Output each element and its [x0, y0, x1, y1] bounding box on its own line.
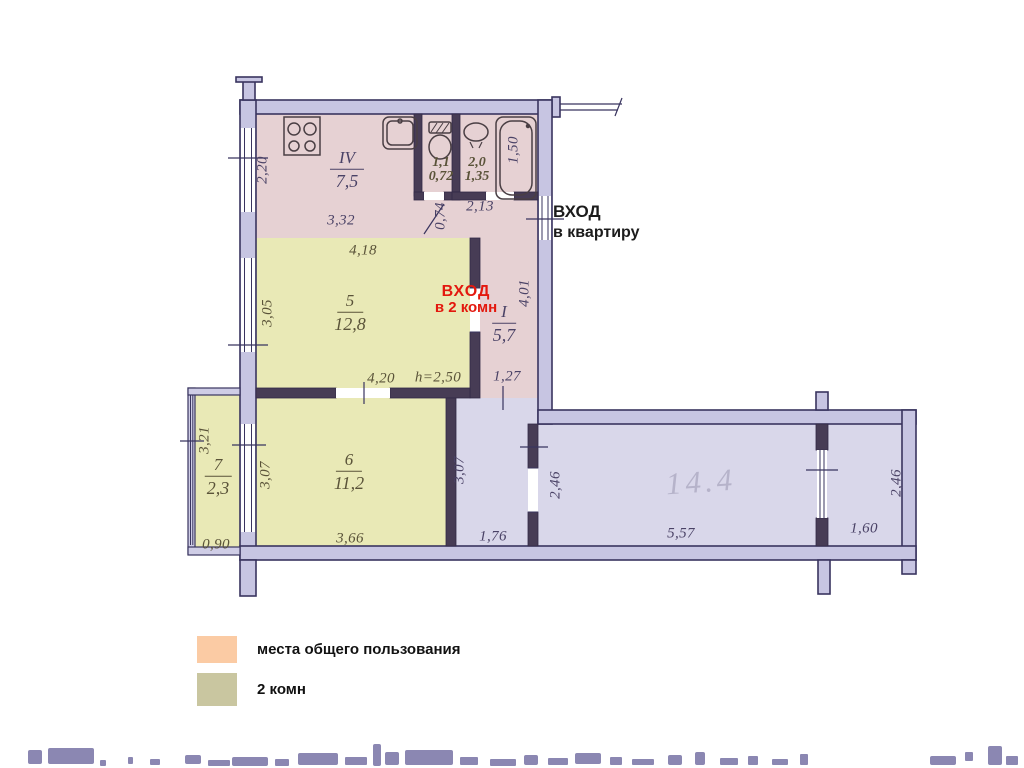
room-label-room5: 5 12,8: [334, 292, 366, 334]
dim-room6-bottom: 3,66: [336, 531, 364, 548]
room-label-bath: 2,0 1,35: [465, 156, 490, 184]
room-toilet-area-bottom: 0,72: [429, 170, 454, 184]
room-label-room6: 6 11,2: [334, 451, 364, 493]
room-bath-area-bottom: 1,35: [465, 170, 490, 184]
room-label-balcony: 7 2,3: [205, 456, 232, 498]
room-room5-area: 12,8: [334, 312, 366, 334]
dim-room5-bottom: 4,20: [367, 371, 395, 388]
dim-room6-left: 3,07: [258, 461, 275, 489]
room-room6-area: 11,2: [334, 471, 364, 493]
room-balcony-numeral: 7: [205, 456, 232, 477]
dim-hall-right: 4,01: [517, 279, 534, 307]
room-hall-area: 5,7: [492, 323, 516, 345]
dim-right-section-right: 2,46: [889, 469, 906, 497]
room-label-kitchen: IV 7,5: [330, 149, 364, 191]
dim-wc-passage: 0,74: [433, 202, 450, 230]
dim-corridor-left: 3,07: [452, 456, 469, 484]
legend-swatch-common-areas: [197, 636, 237, 663]
scan-edge-artifacts: [28, 744, 1018, 766]
room-kitchen-area: 7,5: [330, 169, 364, 191]
dim-kitchen-height: 2,20: [255, 156, 272, 184]
room-kitchen-numeral: IV: [330, 149, 364, 170]
room-room5-numeral: 5: [337, 292, 364, 313]
entrance-2rooms-line1: ВХОД: [435, 284, 497, 300]
dim-bath-width: 2,13: [466, 199, 494, 216]
dim-right-section-bottom: 1,60: [850, 521, 878, 538]
entrance-apartment-line2: в квартиру: [553, 222, 640, 243]
room-bath-area-top: 2,0: [465, 156, 490, 170]
dim-room5-left: 3,05: [260, 299, 277, 327]
dim-balcony-left: 3,21: [197, 426, 214, 454]
floorplan-page: IV 7,5 5 12,8 I 5,7 6 11,2 7 2,3 1,1 0,7…: [0, 0, 1024, 768]
room-room6-numeral: 6: [336, 451, 363, 472]
dim-hall-bottom: 1,27: [493, 369, 521, 386]
legend-row-common-areas: места общего пользования: [197, 636, 461, 663]
dim-room5-top: 4,18: [349, 243, 377, 260]
legend-label-2rooms: 2 комн: [257, 681, 306, 698]
room-toilet-area-top: 1,1: [429, 156, 454, 170]
entrance-2rooms-line2: в 2 комн: [435, 300, 497, 316]
legend-label-common-areas: места общего пользования: [257, 641, 461, 658]
room-balcony-area: 2,3: [205, 476, 232, 498]
dim-bigroom-left: 2,46: [548, 471, 565, 499]
handwritten-area-bigroom: 14.4: [665, 462, 738, 503]
room-label-toilet: 1,1 0,72: [429, 156, 454, 184]
legend-row-2rooms: 2 комн: [197, 673, 306, 706]
dim-kitchen-width: 3,32: [327, 213, 355, 230]
dim-bigroom-bottom: 5,57: [667, 526, 695, 543]
legend-swatch-2rooms: [197, 673, 237, 706]
dim-bathtub-length: 1,50: [506, 136, 523, 164]
entrance-apartment-label: ВХОД в квартиру: [553, 201, 640, 243]
dim-corridor-bottom: 1,76: [479, 529, 507, 546]
dim-ceiling-height: h=2,50: [415, 370, 461, 387]
entrance-2rooms-label: ВХОД в 2 комн: [435, 284, 497, 316]
entrance-apartment-line1: ВХОД: [553, 201, 640, 222]
dim-balcony-bottom: 0,90: [202, 537, 230, 554]
